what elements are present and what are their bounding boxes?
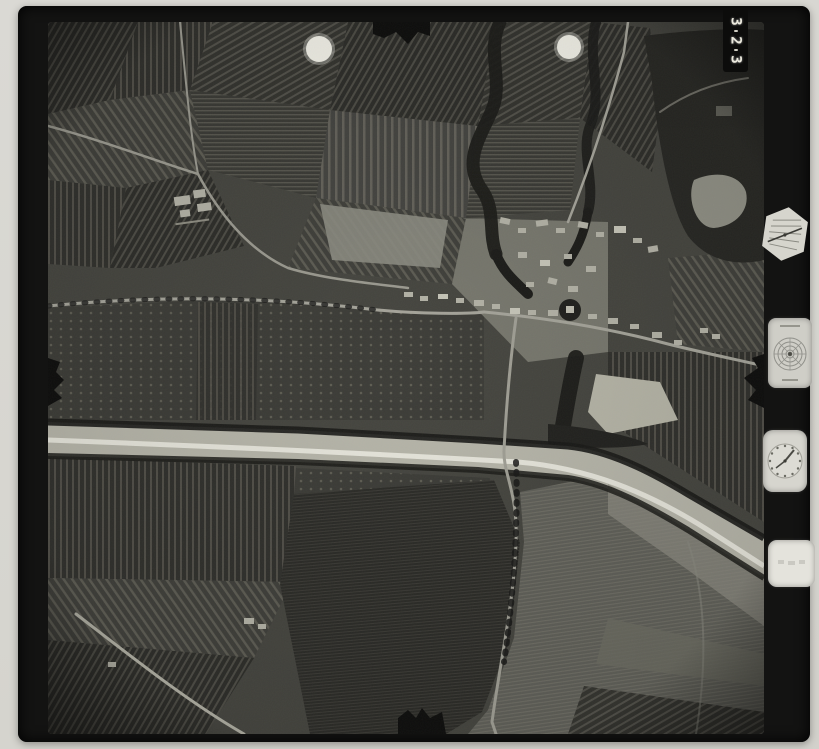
data-plate-faint-marks [778,560,805,565]
aerial-photo-scene [48,22,764,734]
altimeter-gauge [759,203,810,265]
scanned-aerial-photo-card: { "mount": { "frame_number": "3-2-3", "f… [0,0,819,749]
frame-number-digit: 3 [728,17,743,25]
clock [763,430,807,492]
film-frame: 3 2 3 [18,6,810,742]
frame-number-tab: 3 2 3 [723,8,748,72]
frame-number-separator [734,49,738,51]
aerial-photo [48,22,764,734]
frame-number-separator [734,30,738,32]
level-bubble-dot [788,352,792,356]
bubble-level [768,318,812,388]
vignette [48,22,764,734]
frame-number-digit: 3 [728,55,743,63]
frame-number-digit: 2 [728,36,743,44]
data-plate [768,540,815,587]
